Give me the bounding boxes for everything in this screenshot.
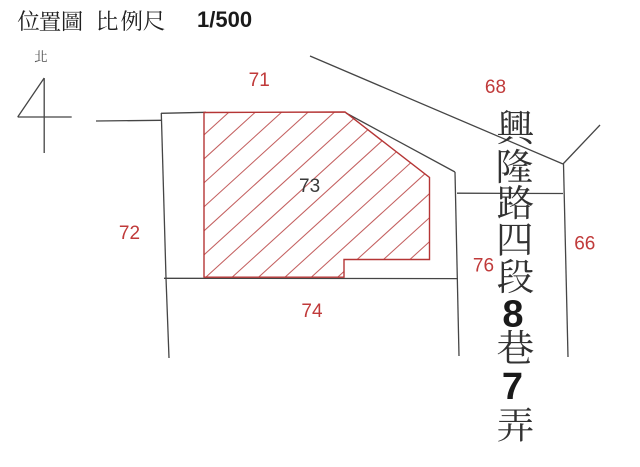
svg-text:1/500: 1/500 — [197, 7, 252, 32]
svg-text:74: 74 — [301, 301, 323, 322]
svg-text:71: 71 — [249, 70, 270, 91]
svg-text:76: 76 — [473, 256, 494, 277]
svg-text:73: 73 — [299, 176, 320, 197]
svg-text:66: 66 — [574, 234, 595, 255]
svg-text:8: 8 — [502, 293, 523, 335]
svg-text:68: 68 — [485, 77, 506, 98]
svg-text:72: 72 — [119, 223, 140, 244]
svg-text:7: 7 — [502, 366, 523, 408]
